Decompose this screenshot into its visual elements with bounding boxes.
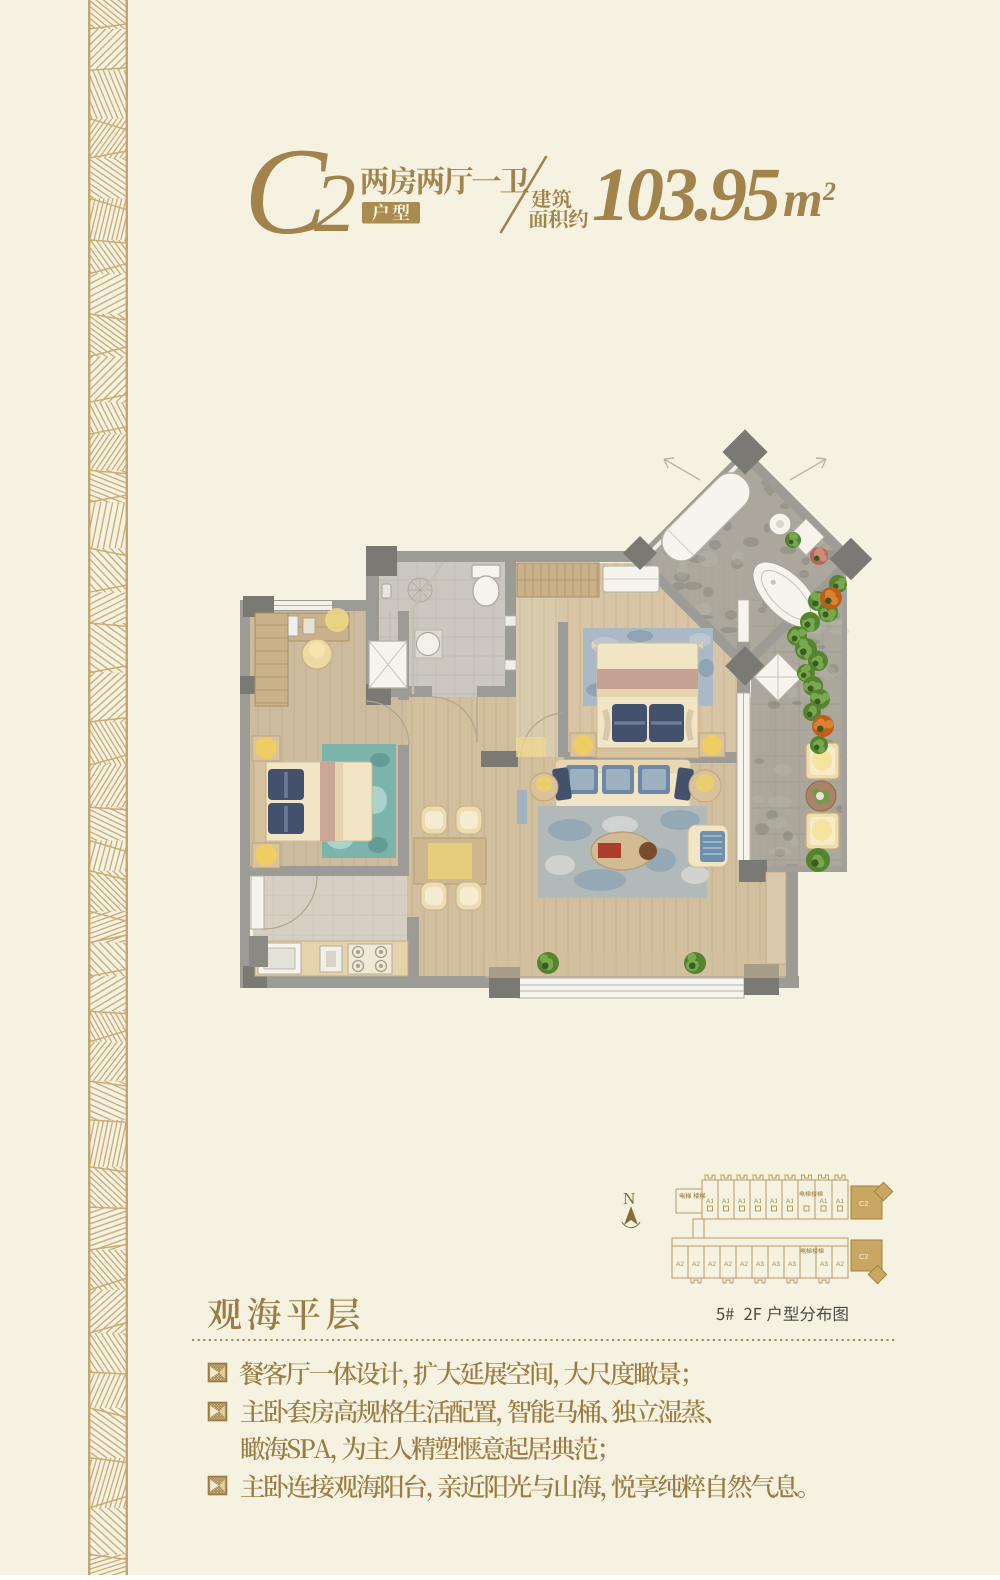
svg-text:N: N <box>623 1189 635 1208</box>
svg-text:A2: A2 <box>676 1261 684 1268</box>
svg-text:A2: A2 <box>692 1261 700 1268</box>
svg-text:A2: A2 <box>836 1261 844 1268</box>
svg-text:A2: A2 <box>708 1261 716 1268</box>
svg-text:A1: A1 <box>786 1198 794 1205</box>
svg-text:A2: A2 <box>740 1261 748 1268</box>
svg-text:C2: C2 <box>859 1199 869 1208</box>
svg-text:103.95: 103.95 <box>592 153 780 237</box>
svg-text:A1: A1 <box>706 1198 714 1205</box>
svg-text:A3: A3 <box>772 1261 780 1268</box>
svg-text:A1: A1 <box>754 1198 762 1205</box>
svg-text:A3: A3 <box>788 1261 796 1268</box>
svg-text:A2: A2 <box>724 1261 732 1268</box>
svg-text:A1: A1 <box>738 1198 746 1205</box>
svg-text:m: m <box>783 172 823 228</box>
svg-text:A1: A1 <box>820 1198 828 1205</box>
svg-text:2: 2 <box>314 157 356 250</box>
svg-text:A1: A1 <box>836 1198 844 1205</box>
svg-text:A1: A1 <box>770 1198 778 1205</box>
svg-text:A1: A1 <box>722 1198 730 1205</box>
svg-text:A3: A3 <box>756 1261 764 1268</box>
svg-text:2: 2 <box>822 177 836 206</box>
svg-text:C2: C2 <box>859 1252 869 1261</box>
svg-text:A3: A3 <box>820 1261 828 1268</box>
